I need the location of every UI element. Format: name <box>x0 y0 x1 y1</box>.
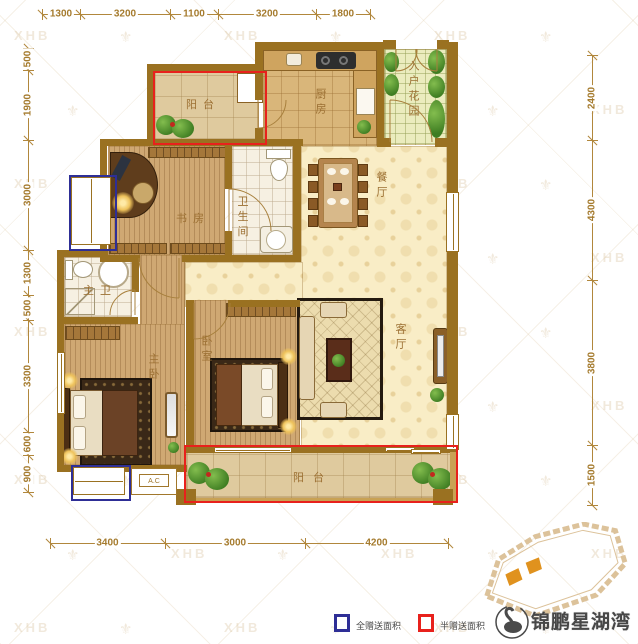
fleur-icon: ⚜ <box>276 546 292 564</box>
watermark-text: XHB <box>171 546 207 561</box>
plate-icon <box>340 198 349 205</box>
plant-icon <box>428 50 445 74</box>
label-entry-garden: 入户花园 <box>405 60 421 120</box>
window <box>446 192 459 252</box>
ac-label: A.C <box>148 478 160 485</box>
label-bottom-balcony: 阳台 <box>293 469 333 485</box>
label-bathroom: 卫生间 <box>234 196 250 241</box>
sink-icon <box>266 230 286 250</box>
watermark-text: XHB <box>14 176 50 191</box>
chair-icon <box>308 215 318 227</box>
wall <box>293 146 301 257</box>
mirror-icon <box>165 392 178 438</box>
plant-icon <box>168 442 179 453</box>
label-master-bath: 主卫 <box>83 282 117 298</box>
plant-icon <box>430 388 444 402</box>
fleur-icon: ⚜ <box>119 620 135 638</box>
chair-icon <box>308 181 318 193</box>
wall <box>186 307 194 447</box>
pillow-icon <box>261 368 273 390</box>
armchair-icon <box>320 302 347 318</box>
burner-icon <box>321 56 330 65</box>
chair-icon <box>358 164 368 176</box>
suite-entry-floor <box>140 255 185 325</box>
chair-icon <box>308 198 318 210</box>
pillow-icon <box>73 395 86 419</box>
wall <box>255 42 383 50</box>
wall <box>377 49 384 138</box>
centerpiece-icon <box>333 183 342 191</box>
wall <box>383 40 396 49</box>
blanket-icon <box>216 364 242 426</box>
floor-plan-canvas: XHB⚜XHB⚜XHB⚜XHB⚜XHB⚜XHB⚜XHB⚜XHB⚜XHB⚜XHB⚜… <box>0 0 638 644</box>
developer-logo-text: 锦鹏星湖湾 <box>531 607 631 634</box>
chair-icon <box>358 215 368 227</box>
full-gift-overlay-study-bay <box>69 175 117 251</box>
watermark-text: XHB <box>591 102 627 117</box>
sofa-icon <box>299 316 315 400</box>
wall <box>100 255 140 262</box>
burner-icon <box>339 56 348 65</box>
fleur-icon: ⚜ <box>66 546 82 564</box>
fleur-icon: ⚜ <box>539 176 555 194</box>
fridge-icon <box>356 88 375 115</box>
tv-icon <box>437 335 444 377</box>
watermark-text: XHB <box>224 620 260 635</box>
lamp-icon <box>280 348 297 365</box>
toilet-tank-icon <box>65 260 73 280</box>
blanket-icon <box>102 390 138 456</box>
wall <box>132 262 139 292</box>
plant-icon <box>428 76 445 98</box>
watermark-text: XHB <box>591 398 627 413</box>
fleur-icon: ⚜ <box>539 472 555 490</box>
wall <box>186 300 194 307</box>
label-study: 书房 <box>176 210 210 226</box>
fleur-icon: ⚜ <box>66 102 82 120</box>
plant-icon <box>384 74 399 96</box>
wall <box>377 138 391 147</box>
fleur-icon: ⚜ <box>486 398 502 416</box>
wall <box>225 231 232 257</box>
wall <box>228 300 300 307</box>
lamp-icon <box>280 418 297 435</box>
bookshelf-icon <box>170 243 226 254</box>
kitchen-sink-icon <box>286 53 302 66</box>
full-gift-overlay-bedroom-bay <box>71 465 131 501</box>
label-dining: 餐厅 <box>373 171 389 201</box>
watermark-text: XHB <box>14 324 50 339</box>
wall <box>447 42 458 152</box>
toilet-icon <box>73 261 93 278</box>
full-gift-label: 全赠送面积 <box>356 619 401 632</box>
watermark-text: XHB <box>14 472 50 487</box>
plate-icon <box>327 198 336 205</box>
watermark-text: XHB <box>591 546 627 561</box>
label-top-balcony: 阳台 <box>186 96 220 112</box>
wall <box>225 146 232 189</box>
watermark-text: XHB <box>14 28 50 43</box>
plate-icon <box>327 168 336 175</box>
watermark-text: XHB <box>591 250 627 265</box>
label-living: 客厅 <box>392 323 408 353</box>
full-gift-swatch <box>334 614 350 632</box>
fleur-icon: ⚜ <box>539 28 555 46</box>
window <box>57 352 65 414</box>
entry-door-gap <box>396 40 437 49</box>
desk-chair-icon <box>132 182 154 204</box>
pillow-icon <box>73 426 86 450</box>
pillow-icon <box>261 396 273 418</box>
fleur-icon: ⚜ <box>119 28 135 46</box>
plant-icon <box>384 52 399 72</box>
fleur-icon: ⚜ <box>486 102 502 120</box>
plate-icon <box>340 168 349 175</box>
wall <box>435 138 458 147</box>
wardrobe-icon <box>65 326 120 340</box>
fleur-icon: ⚜ <box>486 250 502 268</box>
half-gift-swatch <box>418 614 434 632</box>
toilet-tank-icon <box>266 149 291 159</box>
label-master-bedroom: 主卧 <box>145 353 161 383</box>
wall <box>62 317 138 324</box>
watermark-text: XHB <box>14 620 50 635</box>
watermark-text: XHB <box>224 28 260 43</box>
fleur-icon: ⚜ <box>486 546 502 564</box>
flower-arrangement-icon <box>332 354 345 367</box>
fleur-icon: ⚜ <box>539 324 555 342</box>
ac-label-box: A.C <box>139 474 169 487</box>
bookshelf-icon <box>109 243 167 254</box>
armchair-icon <box>320 402 347 418</box>
chair-icon <box>358 181 368 193</box>
watermark-text: XHB <box>381 546 417 561</box>
wall <box>182 255 301 262</box>
label-kitchen: 厨房 <box>312 88 328 118</box>
plant-icon <box>357 120 371 134</box>
bookshelf-icon <box>148 147 230 158</box>
label-bedroom: 卧室 <box>198 335 214 365</box>
half-gift-label: 半赠送面积 <box>440 619 485 632</box>
plant-icon <box>428 100 445 138</box>
chair-icon <box>358 198 368 210</box>
chair-icon <box>308 164 318 176</box>
